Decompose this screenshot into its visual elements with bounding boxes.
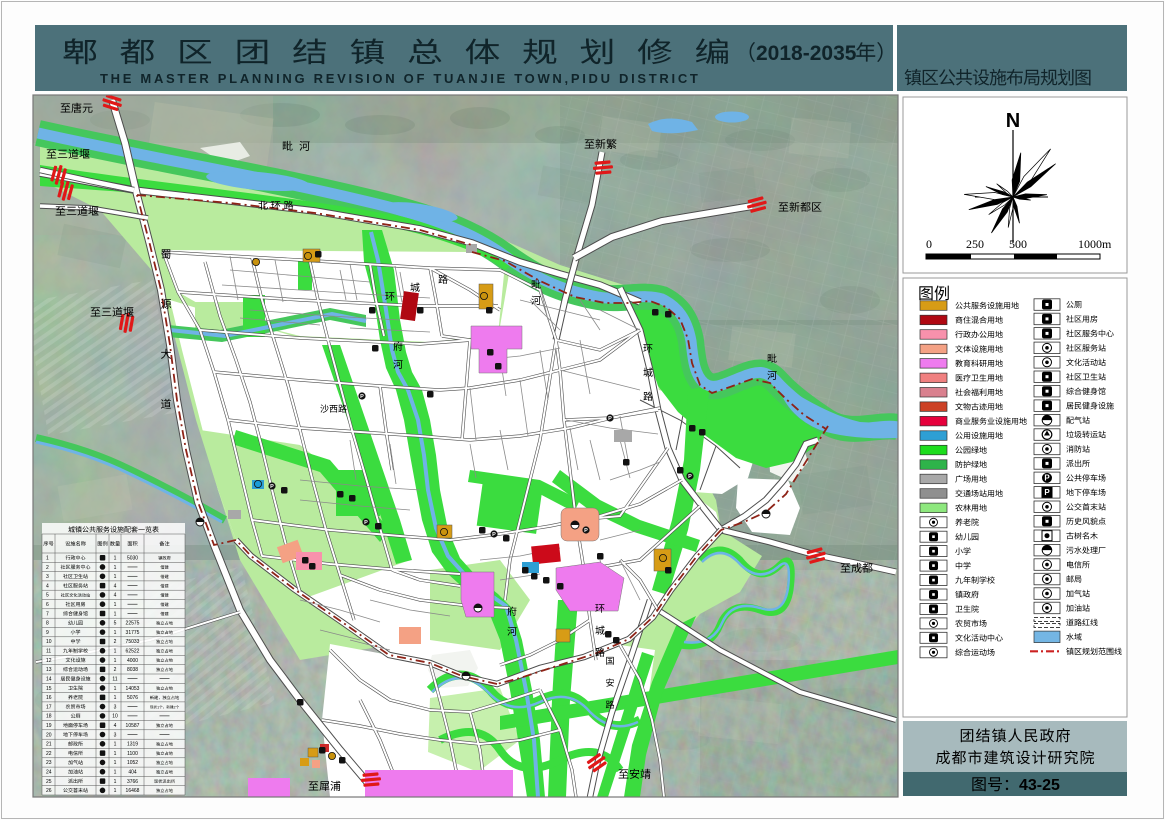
- svg-text:1052: 1052: [127, 760, 138, 766]
- svg-text:2: 2: [114, 667, 117, 673]
- svg-text:6: 6: [46, 602, 49, 608]
- svg-text:22575: 22575: [126, 621, 140, 627]
- svg-text:5: 5: [114, 621, 117, 627]
- svg-text:10587: 10587: [126, 723, 140, 729]
- svg-text:26: 26: [46, 788, 52, 794]
- svg-text:1: 1: [114, 779, 117, 785]
- svg-text:14053: 14053: [126, 686, 140, 692]
- svg-text:10: 10: [46, 639, 52, 645]
- svg-text:12: 12: [46, 658, 52, 664]
- svg-text:3: 3: [46, 574, 49, 580]
- svg-text:31775: 31775: [126, 630, 140, 636]
- svg-text:16: 16: [46, 695, 52, 701]
- svg-text:9: 9: [46, 630, 49, 636]
- svg-text:1: 1: [114, 751, 117, 757]
- svg-text:8: 8: [46, 621, 49, 627]
- svg-text:20: 20: [46, 732, 52, 738]
- svg-text:19: 19: [46, 723, 52, 729]
- svg-text:1: 1: [46, 555, 49, 561]
- svg-text:5: 5: [46, 593, 49, 599]
- svg-text:43-25: 43-25: [1019, 777, 1060, 794]
- svg-text:22: 22: [46, 751, 52, 757]
- svg-text:3: 3: [114, 732, 117, 738]
- svg-text:1100: 1100: [127, 751, 138, 757]
- svg-text:17: 17: [46, 704, 52, 710]
- svg-text:404: 404: [128, 770, 137, 776]
- svg-text:1: 1: [114, 788, 117, 794]
- svg-text:P: P: [492, 532, 496, 538]
- svg-text:N: N: [1006, 110, 1020, 132]
- svg-text:P: P: [584, 528, 588, 534]
- svg-text:THE MASTER PLANNING REVISION O: THE MASTER PLANNING REVISION OF TUANJIE …: [100, 71, 701, 86]
- svg-text:1: 1: [114, 555, 117, 561]
- svg-text:24: 24: [46, 770, 52, 776]
- svg-text:1319: 1319: [127, 742, 138, 748]
- svg-text:2: 2: [114, 639, 117, 645]
- svg-text:1: 1: [114, 658, 117, 664]
- svg-text:4: 4: [46, 583, 49, 589]
- svg-text:P: P: [364, 520, 368, 526]
- svg-text:1: 1: [114, 695, 117, 701]
- svg-text:16468: 16468: [126, 788, 140, 794]
- svg-text:8038: 8038: [127, 667, 138, 673]
- svg-text:4: 4: [114, 583, 117, 589]
- svg-text:18: 18: [46, 714, 52, 720]
- svg-text:P: P: [688, 474, 692, 480]
- svg-text:11: 11: [46, 649, 51, 655]
- svg-text:2018-2035: 2018-2035: [756, 42, 857, 65]
- svg-text:1: 1: [114, 565, 117, 571]
- svg-text:P: P: [1044, 488, 1050, 497]
- svg-text:3766: 3766: [127, 779, 138, 785]
- svg-text:4: 4: [114, 723, 117, 729]
- svg-text:P: P: [270, 484, 274, 490]
- svg-text:14: 14: [46, 676, 52, 682]
- svg-text:4000: 4000: [127, 658, 138, 664]
- svg-text:1000m: 1000m: [1078, 237, 1112, 251]
- svg-text:3: 3: [114, 704, 117, 710]
- svg-text:1: 1: [114, 602, 117, 608]
- svg-text:250: 250: [966, 237, 984, 251]
- svg-text:25: 25: [46, 779, 52, 785]
- svg-text:P: P: [608, 416, 612, 422]
- svg-text:1: 1: [157, 705, 159, 709]
- svg-text:23: 23: [46, 760, 52, 766]
- svg-text:500: 500: [1009, 237, 1027, 251]
- svg-text:1: 1: [114, 574, 117, 580]
- svg-text:1: 1: [114, 742, 117, 748]
- svg-text:4: 4: [114, 593, 117, 599]
- svg-text:75033: 75033: [126, 639, 140, 645]
- svg-text:7: 7: [46, 611, 49, 617]
- svg-text:62522: 62522: [126, 649, 140, 655]
- svg-text:1: 1: [114, 630, 117, 636]
- svg-text:P: P: [360, 394, 364, 400]
- svg-text:5076: 5076: [127, 695, 138, 701]
- svg-text:15: 15: [46, 686, 52, 692]
- svg-text:5030: 5030: [127, 555, 138, 561]
- svg-text:2: 2: [174, 705, 176, 709]
- svg-text:13: 13: [46, 667, 52, 673]
- svg-text:1: 1: [114, 760, 117, 766]
- svg-text:0: 0: [926, 237, 932, 251]
- svg-text:2: 2: [46, 565, 49, 571]
- svg-text:21: 21: [46, 742, 52, 748]
- svg-text:1: 1: [114, 649, 117, 655]
- svg-text:11: 11: [112, 676, 117, 682]
- svg-text:1: 1: [114, 770, 117, 776]
- svg-text:1: 1: [114, 611, 117, 617]
- svg-text:P: P: [1044, 474, 1050, 483]
- svg-text:1: 1: [114, 686, 117, 692]
- svg-text:10: 10: [112, 714, 118, 720]
